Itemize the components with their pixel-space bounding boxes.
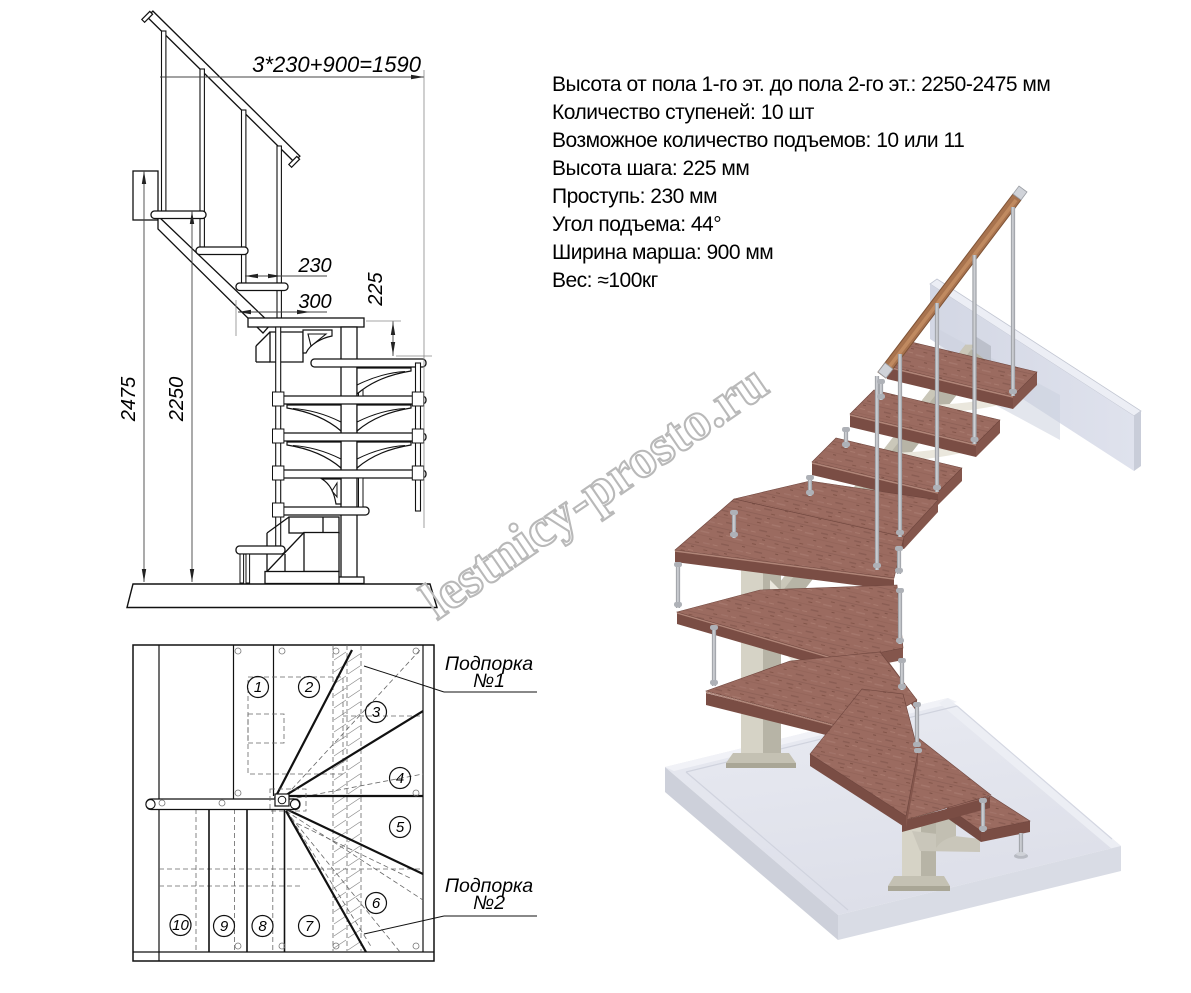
svg-text:300: 300 [298,291,331,313]
svg-text:230: 230 [297,255,331,277]
svg-text:7: 7 [305,918,314,935]
svg-text:4: 4 [396,770,404,787]
svg-text:225: 225 [365,271,387,306]
svg-text:3*230+900=1590: 3*230+900=1590 [252,52,422,77]
svg-text:5: 5 [396,819,405,836]
svg-text:9: 9 [220,918,229,935]
svg-text:1: 1 [254,679,262,696]
svg-text:2250: 2250 [166,377,188,423]
svg-text:2475: 2475 [118,376,140,422]
svg-text:10: 10 [172,917,189,934]
svg-text:8: 8 [258,918,267,935]
svg-text:2: 2 [304,679,314,696]
svg-text:3: 3 [372,704,381,721]
svg-text:6: 6 [372,895,381,912]
